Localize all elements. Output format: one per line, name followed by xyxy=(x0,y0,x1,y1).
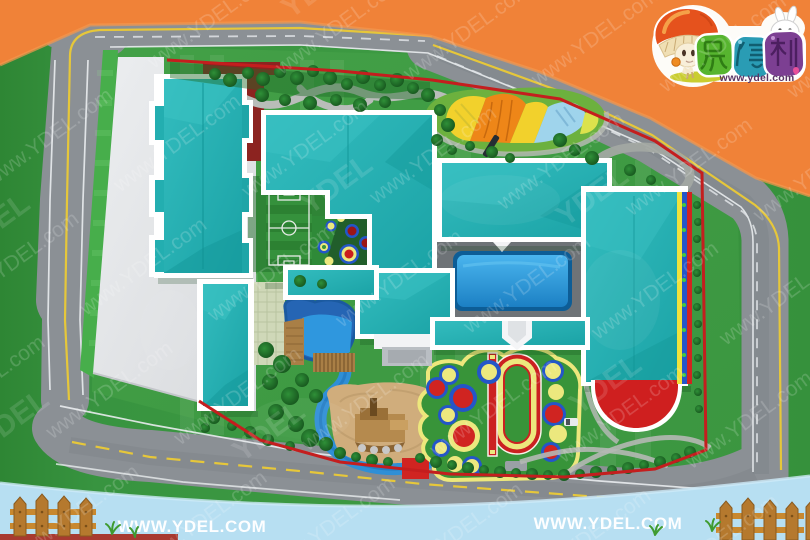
svg-text:www.ydel.com: www.ydel.com xyxy=(719,72,795,84)
